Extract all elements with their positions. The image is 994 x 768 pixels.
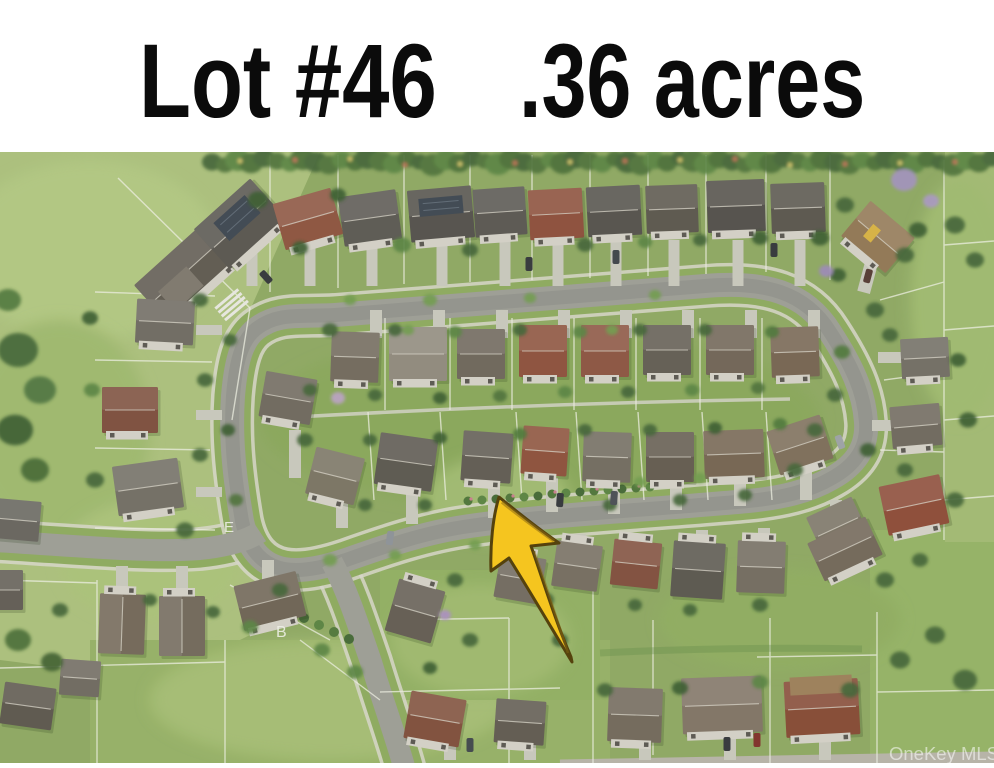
svg-text:OneKey MLS: OneKey MLS [889,743,994,763]
